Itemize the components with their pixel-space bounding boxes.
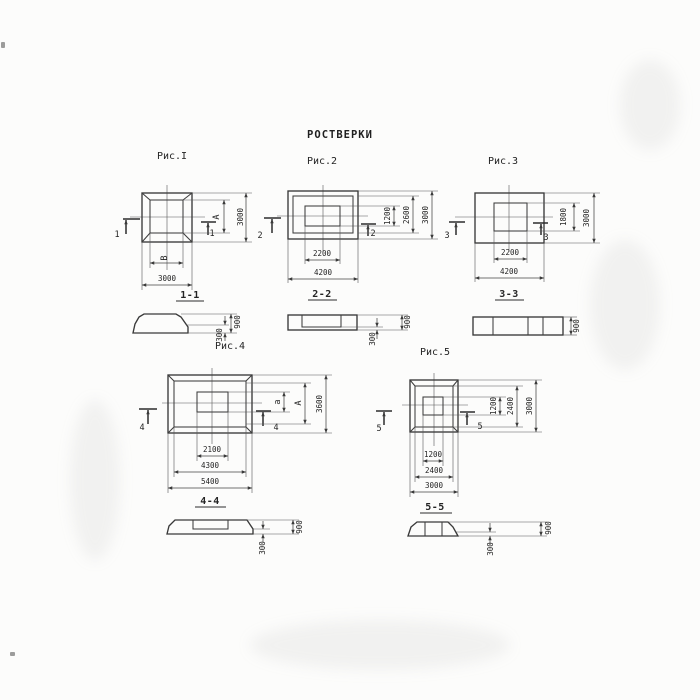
section-3-3-svg: 900 xyxy=(455,306,600,350)
fig1-dim-width-outer: 3000 xyxy=(158,274,177,283)
fig4-contour xyxy=(168,375,252,433)
fig1-cut-label-right: 1 xyxy=(209,229,214,239)
fig4-plan-svg: 4 4 а А 3600 2100 4300 xyxy=(130,360,340,512)
figure-caption-2: Рис.2 xyxy=(282,156,362,167)
section-4-4-toe-height: 300 xyxy=(258,541,267,555)
fig2-dim-height-2: 2600 xyxy=(402,205,411,224)
section-1-1-svg: 900 300 xyxy=(110,306,260,354)
fig2-cut-label-right: 2 xyxy=(370,229,375,239)
section-2-2-recess xyxy=(302,315,341,327)
fig5-dim-width-3: 3000 xyxy=(425,481,444,490)
fig4-cut-marks: 4 4 xyxy=(139,409,279,433)
fig1-plan-svg: 1 1 А 3000 В 3000 1-1 xyxy=(95,178,270,308)
fig5-dimensions: 1200 2400 3000 1200 2400 3000 xyxy=(410,380,542,497)
fig1-dim-width-inner: В xyxy=(160,255,170,260)
fig1-dim-height-outer: 3000 xyxy=(236,207,245,226)
fig5-cut-label-left: 5 xyxy=(376,424,381,434)
section-5-5-profile xyxy=(408,522,458,536)
section-5-5-height: 900 xyxy=(544,521,553,535)
fig4-dimensions: а А 3600 2100 4300 5400 xyxy=(168,375,332,493)
fig4-dim-height-2: А xyxy=(294,400,304,405)
fig4-dim-height-1: а xyxy=(273,399,283,404)
svg-text:4-4: 4-4 xyxy=(200,496,220,507)
section-3-3-profile xyxy=(473,317,563,335)
section-1-1-height: 900 xyxy=(233,315,242,329)
fig5-dim-height-1: 1200 xyxy=(489,396,498,415)
fig3-dim-height-inner: 1800 xyxy=(559,207,568,226)
fig5-dim-height-3: 3000 xyxy=(525,396,534,415)
paper-stain xyxy=(250,620,510,670)
fig4-cut-label-left: 4 xyxy=(139,423,144,433)
section-5-5-toe-height: 300 xyxy=(486,542,495,556)
fig2-dim-width-inner: 2200 xyxy=(313,249,332,258)
fig5-dim-width-2: 2400 xyxy=(425,466,444,475)
section-2-2-profile xyxy=(288,315,357,330)
paper-stain xyxy=(620,60,680,150)
fig1-dim-height-inner: А xyxy=(212,214,222,219)
section-1-1-profile xyxy=(133,314,188,333)
section-2-2-svg: 900 300 xyxy=(270,306,420,354)
fig2-plan-svg: 2 2 1200 2600 3000 2200 4200 xyxy=(250,178,450,308)
fig5-plan-svg: 5 5 1200 2400 3000 1200 2400 xyxy=(370,360,555,518)
fig2-dim-height-3: 3000 xyxy=(421,205,430,224)
section-4-4-svg: 900 300 xyxy=(140,514,320,560)
fig1-cut-label-left: 1 xyxy=(114,230,119,240)
fig5-dim-height-2: 2400 xyxy=(506,396,515,415)
section-4-4-recess xyxy=(193,520,228,529)
fig3-dim-height-outer: 3000 xyxy=(582,208,591,227)
paper-stain xyxy=(70,400,120,560)
scanned-drawing-page: РОСТВЕРКИ Рис.I Рис.2 Рис.3 Рис.4 Рис.5 … xyxy=(0,0,700,700)
fig2-dim-width-outer: 4200 xyxy=(314,268,333,277)
fig5-cut-marks: 5 5 xyxy=(376,411,483,434)
figure-caption-3: Рис.3 xyxy=(463,156,543,167)
fig4-dim-width-2: 4300 xyxy=(201,461,220,470)
fig3-cut-label-right: 3 xyxy=(543,233,548,243)
section-2-2-toe-height: 300 xyxy=(368,332,377,346)
fig3-dim-width-outer: 4200 xyxy=(500,267,519,276)
fig4-dim-width-1: 2100 xyxy=(203,445,222,454)
section-4-4-profile xyxy=(167,520,253,534)
section-4-4-height: 900 xyxy=(295,520,304,534)
fig2-dimensions: 1200 2600 3000 2200 4200 xyxy=(288,191,438,283)
fig2-section-label: 2-2 xyxy=(308,289,337,300)
fig4-cut-label-right: 4 xyxy=(273,423,278,433)
fig3-plan-svg: 3 3 1800 3000 2200 4200 3-3 xyxy=(440,178,610,308)
fig3-dim-width-inner: 2200 xyxy=(501,248,520,257)
fig2-dim-height-1: 1200 xyxy=(383,206,392,225)
svg-text:2-2: 2-2 xyxy=(312,289,332,300)
svg-text:5-5: 5-5 xyxy=(425,502,445,513)
section-3-3-height: 900 xyxy=(572,319,581,333)
fig3-cut-label-left: 3 xyxy=(444,231,449,241)
fig1-cut-marks: 1 1 xyxy=(114,219,216,240)
section-1-1-toe-height: 300 xyxy=(215,328,224,342)
scan-speck xyxy=(10,652,15,656)
fig3-section-label: 3-3 xyxy=(495,289,524,300)
fig1-section-label: 1-1 xyxy=(176,290,204,301)
svg-text:1-1: 1-1 xyxy=(180,290,200,301)
fig4-section-label: 4-4 xyxy=(195,496,226,507)
fig3-contour xyxy=(475,193,544,243)
fig4-dim-height-3: 3600 xyxy=(315,394,324,413)
fig2-centerlines xyxy=(277,185,368,252)
figure-caption-1: Рис.I xyxy=(132,151,212,162)
fig3-cut-marks: 3 3 xyxy=(444,222,548,243)
fig5-section-label: 5-5 xyxy=(420,502,452,513)
fig2-cut-label-left: 2 xyxy=(257,231,262,241)
scan-speck xyxy=(1,42,5,48)
fig3-centerlines xyxy=(455,185,553,252)
section-2-2-height: 900 xyxy=(403,315,412,329)
fig4-dim-width-3: 5400 xyxy=(201,477,220,486)
fig5-dim-width-1: 1200 xyxy=(424,450,443,459)
section-5-5-svg: 900 300 xyxy=(395,514,560,560)
svg-text:3-3: 3-3 xyxy=(499,289,519,300)
sheet-title: РОСТВЕРКИ xyxy=(270,129,410,141)
